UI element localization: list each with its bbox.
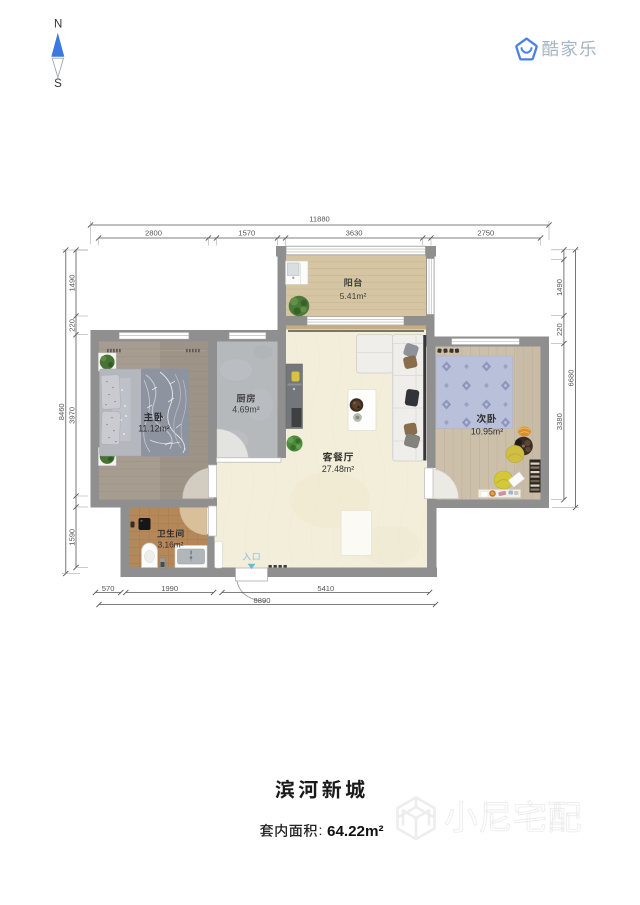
svg-text:5410: 5410 (317, 584, 334, 593)
svg-text:3630: 3630 (346, 229, 363, 238)
svg-text::: : (319, 822, 323, 838)
svg-text:11.12m²: 11.12m² (138, 424, 170, 434)
svg-text:220: 220 (67, 319, 76, 332)
svg-text:2750: 2750 (477, 229, 494, 238)
svg-text:1990: 1990 (161, 584, 178, 593)
svg-text:570: 570 (102, 584, 115, 593)
svg-text:8460: 8460 (57, 403, 66, 420)
svg-text:1490: 1490 (555, 279, 564, 296)
svg-text:3.16m²: 3.16m² (158, 540, 184, 550)
svg-text:1590: 1590 (67, 529, 76, 546)
svg-text:3380: 3380 (555, 413, 564, 430)
svg-text:27.48m²: 27.48m² (322, 464, 354, 474)
svg-text:4.69m²: 4.69m² (232, 405, 259, 415)
svg-text:8890: 8890 (254, 596, 271, 605)
svg-text:11880: 11880 (309, 215, 330, 224)
svg-text:3970: 3970 (67, 407, 76, 424)
svg-text:64.22m²: 64.22m² (327, 823, 384, 840)
svg-text:5.41m²: 5.41m² (340, 291, 367, 301)
svg-text:10.95m²: 10.95m² (471, 427, 503, 437)
svg-text:S: S (54, 78, 62, 90)
svg-text:N: N (54, 18, 62, 30)
svg-text:1570: 1570 (238, 229, 255, 238)
svg-text:2800: 2800 (145, 229, 162, 238)
svg-text:220: 220 (555, 323, 564, 336)
svg-text:6680: 6680 (567, 370, 576, 387)
svg-text:1490: 1490 (67, 275, 76, 292)
